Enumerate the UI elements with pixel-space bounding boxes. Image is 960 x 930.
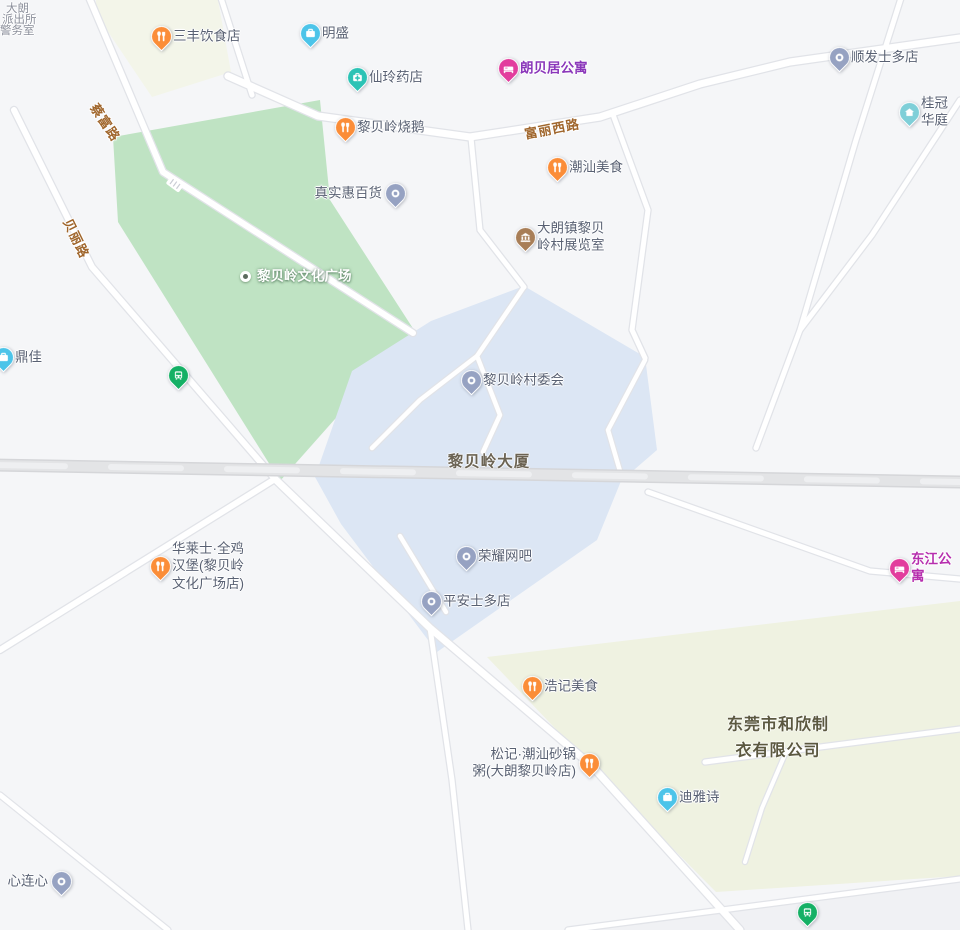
museum-pin[interactable] xyxy=(515,227,536,248)
poi-label[interactable]: 黎贝岭村委会 xyxy=(483,371,564,388)
dot-pin[interactable] xyxy=(51,871,72,892)
medical-pin[interactable] xyxy=(347,67,368,88)
poi-label[interactable]: 潮汕美食 xyxy=(569,158,623,175)
poi-label[interactable]: 浩记美食 xyxy=(544,677,598,694)
dot-pin[interactable] xyxy=(421,591,442,612)
dot-icon xyxy=(425,595,438,608)
poi-label[interactable]: 朗贝居公寓 xyxy=(520,59,588,76)
dot-icon xyxy=(389,187,402,200)
poi-label[interactable]: 松记·潮汕砂锅 粥(大朗黎贝岭店) xyxy=(473,746,577,781)
food-icon xyxy=(339,121,352,134)
food-pin[interactable] xyxy=(335,117,356,138)
house-pin[interactable] xyxy=(899,102,920,123)
dot-pin[interactable] xyxy=(456,546,477,567)
bus-pin[interactable] xyxy=(797,902,818,923)
bus-pin[interactable] xyxy=(168,365,189,386)
poi-label[interactable]: 黎贝岭文化广场 xyxy=(257,267,352,284)
food-icon xyxy=(154,560,167,573)
food-icon xyxy=(583,757,596,770)
poi-label[interactable]: 黎贝岭烧鹅 xyxy=(357,118,425,135)
food-icon xyxy=(526,680,539,693)
poi-label[interactable]: 仙玲药店 xyxy=(369,68,423,85)
briefcase-icon xyxy=(304,27,317,40)
poi-label[interactable]: 明盛 xyxy=(322,24,349,41)
map-canvas[interactable]: 大朗派出所警务室 蔡富路贝丽路富丽西路 黎贝岭大厦东莞市和欣制 衣有限公司 三丰… xyxy=(0,0,960,930)
bed-pin[interactable] xyxy=(889,558,910,579)
briefcase-icon xyxy=(0,351,10,364)
poi-label[interactable]: 鼎佳 xyxy=(15,348,42,365)
poi-label[interactable]: 华莱士·全鸡 汉堡(黎贝岭 文化广场店) xyxy=(172,540,244,592)
plaza-marker-icon[interactable] xyxy=(240,271,251,282)
dot-pin[interactable] xyxy=(829,47,850,68)
poi-label[interactable]: 顺发士多店 xyxy=(851,48,919,65)
dot-icon xyxy=(833,51,846,64)
medical-icon xyxy=(351,71,364,84)
dot-pin[interactable] xyxy=(385,183,406,204)
poi-label[interactable]: 真实惠百货 xyxy=(315,184,383,201)
food-icon xyxy=(155,30,168,43)
dot-icon xyxy=(460,550,473,563)
food-pin[interactable] xyxy=(150,556,171,577)
bed-pin[interactable] xyxy=(498,58,519,79)
area-label: 黎贝岭大厦 xyxy=(448,451,531,476)
museum-icon xyxy=(519,231,532,244)
briefcase-icon xyxy=(661,791,674,804)
food-pin[interactable] xyxy=(547,157,568,178)
poi-label[interactable]: 心连心 xyxy=(8,872,49,889)
area-label: 东莞市和欣制 衣有限公司 xyxy=(727,712,829,763)
bed-icon xyxy=(502,62,515,75)
poi-label[interactable]: 桂冠华庭 xyxy=(921,95,960,130)
bed-icon xyxy=(893,562,906,575)
briefcase-pin[interactable] xyxy=(300,23,321,44)
bus-icon xyxy=(172,369,185,382)
food-pin[interactable] xyxy=(522,676,543,697)
poi-label[interactable]: 迪雅诗 xyxy=(679,788,720,805)
food-pin[interactable] xyxy=(579,753,600,774)
bus-icon xyxy=(801,906,814,919)
food-pin[interactable] xyxy=(151,26,172,47)
food-icon xyxy=(551,161,564,174)
house-icon xyxy=(903,106,916,119)
building-label-line: 警务室 xyxy=(0,22,35,38)
briefcase-pin[interactable] xyxy=(657,787,678,808)
poi-label[interactable]: 平安士多店 xyxy=(443,592,511,609)
poi-label[interactable]: 三丰饮食店 xyxy=(173,27,241,44)
poi-label[interactable]: 大朗镇黎贝 岭村展览室 xyxy=(537,220,605,255)
dot-icon xyxy=(465,374,478,387)
poi-label[interactable]: 荣耀网吧 xyxy=(478,547,532,564)
poi-label[interactable]: 东江公寓 xyxy=(911,551,960,586)
briefcase-pin[interactable] xyxy=(0,347,14,368)
dot-icon xyxy=(55,875,68,888)
dot-pin[interactable] xyxy=(461,370,482,391)
